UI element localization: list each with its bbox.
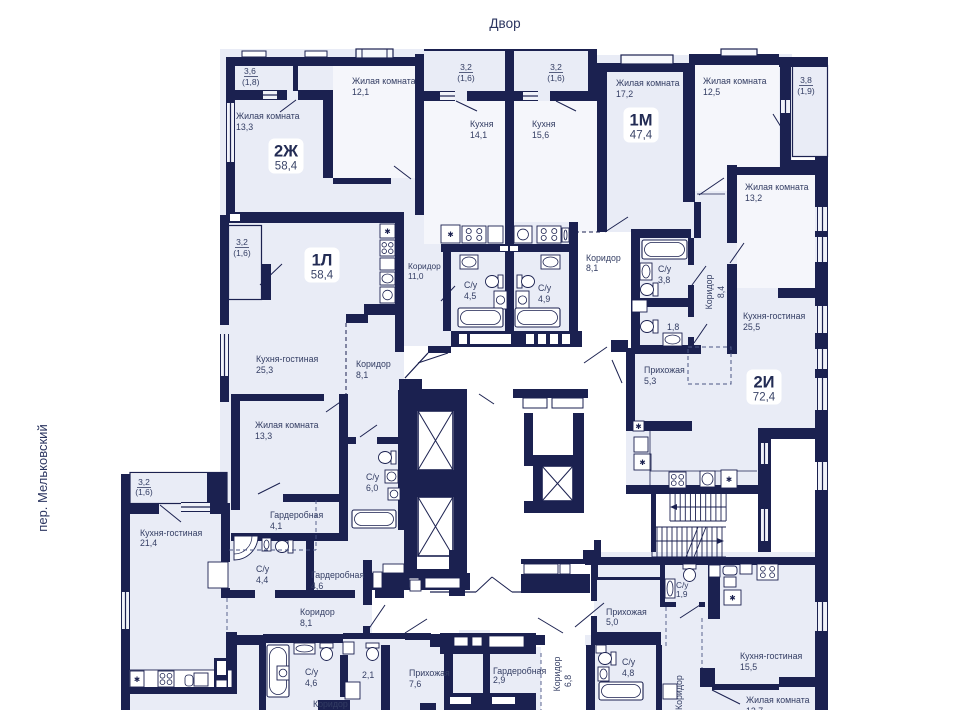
svg-text:Кухня-гостиная: Кухня-гостиная xyxy=(140,528,202,538)
svg-text:✱: ✱ xyxy=(134,675,141,684)
svg-text:15,6: 15,6 xyxy=(532,130,549,140)
svg-text:Коридор: Коридор xyxy=(704,275,714,310)
svg-text:Коридор: Коридор xyxy=(674,675,684,710)
svg-text:13,3: 13,3 xyxy=(255,431,272,441)
svg-text:Гардеробная: Гардеробная xyxy=(270,510,323,520)
svg-text:3,6: 3,6 xyxy=(244,66,256,76)
svg-text:8,4: 8,4 xyxy=(716,286,726,298)
svg-text:Кухня-гостиная: Кухня-гостиная xyxy=(256,354,318,364)
svg-text:Кухня: Кухня xyxy=(532,119,556,129)
svg-text:3,8: 3,8 xyxy=(658,275,670,285)
svg-text:25,3: 25,3 xyxy=(256,365,273,375)
svg-text:Кухня: Кухня xyxy=(470,119,494,129)
svg-text:6,8: 6,8 xyxy=(563,675,573,687)
svg-text:(1,6): (1,6) xyxy=(547,73,565,83)
svg-text:✱: ✱ xyxy=(447,230,454,239)
svg-text:4,5: 4,5 xyxy=(464,291,476,301)
svg-text:4,1: 4,1 xyxy=(270,521,282,531)
svg-text:2,9: 2,9 xyxy=(493,675,505,685)
svg-text:3,8: 3,8 xyxy=(800,75,812,85)
svg-text:✱: ✱ xyxy=(635,422,642,431)
svg-text:5,3: 5,3 xyxy=(644,376,656,386)
svg-text:3,2: 3,2 xyxy=(460,62,472,72)
svg-text:1Л: 1Л xyxy=(312,252,333,270)
svg-text:Жилая комната: Жилая комната xyxy=(352,76,416,86)
svg-text:С/у: С/у xyxy=(622,657,636,667)
svg-text:2Ж: 2Ж xyxy=(274,143,298,161)
svg-text:47,4: 47,4 xyxy=(630,130,653,142)
svg-text:Прихожая: Прихожая xyxy=(409,668,450,678)
svg-text:12,1: 12,1 xyxy=(352,87,369,97)
svg-text:14,1: 14,1 xyxy=(470,130,487,140)
svg-text:8,1: 8,1 xyxy=(300,618,312,628)
svg-text:4,9: 4,9 xyxy=(538,294,550,304)
svg-text:пер. Мельковский: пер. Мельковский xyxy=(35,424,50,531)
svg-text:Кухня-гостиная: Кухня-гостиная xyxy=(743,311,805,321)
svg-text:3,2: 3,2 xyxy=(138,477,150,487)
svg-text:17,2: 17,2 xyxy=(616,89,633,99)
svg-text:4,6: 4,6 xyxy=(311,581,323,591)
svg-text:Коридор: Коридор xyxy=(356,359,391,369)
svg-text:С/у: С/у xyxy=(464,280,478,290)
svg-text:Гардеробная: Гардеробная xyxy=(311,570,364,580)
svg-text:7,6: 7,6 xyxy=(409,679,421,689)
svg-text:С/у: С/у xyxy=(538,283,552,293)
svg-text:Коридор: Коридор xyxy=(552,657,562,692)
svg-text:1,9: 1,9 xyxy=(676,589,688,599)
svg-text:(1,6): (1,6) xyxy=(135,487,153,497)
svg-text:✱: ✱ xyxy=(639,458,646,467)
svg-text:58,4: 58,4 xyxy=(311,270,334,282)
svg-text:(1,6): (1,6) xyxy=(457,73,475,83)
svg-text:Прихожая: Прихожая xyxy=(644,365,685,375)
svg-text:8,1: 8,1 xyxy=(586,263,598,273)
svg-text:3,2: 3,2 xyxy=(236,237,248,247)
svg-text:4,4: 4,4 xyxy=(256,575,268,585)
svg-text:6,0: 6,0 xyxy=(366,483,378,493)
svg-text:Жилая комната: Жилая комната xyxy=(236,111,300,121)
svg-text:1,8: 1,8 xyxy=(667,322,679,332)
svg-text:(1,9): (1,9) xyxy=(797,86,815,96)
svg-text:15,5: 15,5 xyxy=(740,662,757,672)
svg-text:Жилая комната: Жилая комната xyxy=(703,76,767,86)
svg-text:Кухня-гостиная: Кухня-гостиная xyxy=(740,651,802,661)
svg-text:Жилая комната: Жилая комната xyxy=(255,420,319,430)
svg-text:Коридор: Коридор xyxy=(408,261,441,271)
svg-text:4,6: 4,6 xyxy=(305,678,317,688)
svg-text:12,7: 12,7 xyxy=(746,706,763,710)
svg-text:Коридор: Коридор xyxy=(300,607,335,617)
svg-text:2И: 2И xyxy=(753,374,774,392)
svg-text:(1,6): (1,6) xyxy=(233,248,251,258)
svg-text:4,8: 4,8 xyxy=(622,668,634,678)
svg-text:11,0: 11,0 xyxy=(408,271,424,281)
svg-text:72,4: 72,4 xyxy=(753,392,776,404)
svg-text:Жилая комната: Жилая комната xyxy=(745,182,809,192)
svg-text:3,2: 3,2 xyxy=(550,62,562,72)
svg-text:13,2: 13,2 xyxy=(745,193,762,203)
svg-text:С/у: С/у xyxy=(658,264,672,274)
svg-text:✱: ✱ xyxy=(729,593,736,602)
svg-text:Коридор: Коридор xyxy=(313,699,348,709)
svg-text:✱: ✱ xyxy=(726,475,733,484)
svg-text:С/у: С/у xyxy=(305,667,319,677)
svg-text:С/у: С/у xyxy=(256,564,270,574)
svg-text:58,4: 58,4 xyxy=(275,161,298,173)
svg-text:✱: ✱ xyxy=(384,227,391,236)
svg-text:Двор: Двор xyxy=(489,16,520,31)
svg-text:Прихожая: Прихожая xyxy=(606,607,647,617)
svg-text:2,1: 2,1 xyxy=(362,670,374,680)
svg-text:25,5: 25,5 xyxy=(743,322,760,332)
svg-text:12,5: 12,5 xyxy=(703,87,720,97)
svg-text:(1,8): (1,8) xyxy=(242,77,260,87)
svg-text:21,4: 21,4 xyxy=(140,538,157,548)
svg-text:1М: 1М xyxy=(630,112,653,130)
svg-text:С/у: С/у xyxy=(366,472,380,482)
svg-text:8,1: 8,1 xyxy=(356,370,368,380)
svg-text:Жилая комната: Жилая комната xyxy=(616,78,680,88)
svg-text:Коридор: Коридор xyxy=(586,253,621,263)
svg-text:13,3: 13,3 xyxy=(236,122,253,132)
svg-text:Жилая комната: Жилая комната xyxy=(746,695,810,705)
svg-text:5,0: 5,0 xyxy=(606,617,618,627)
